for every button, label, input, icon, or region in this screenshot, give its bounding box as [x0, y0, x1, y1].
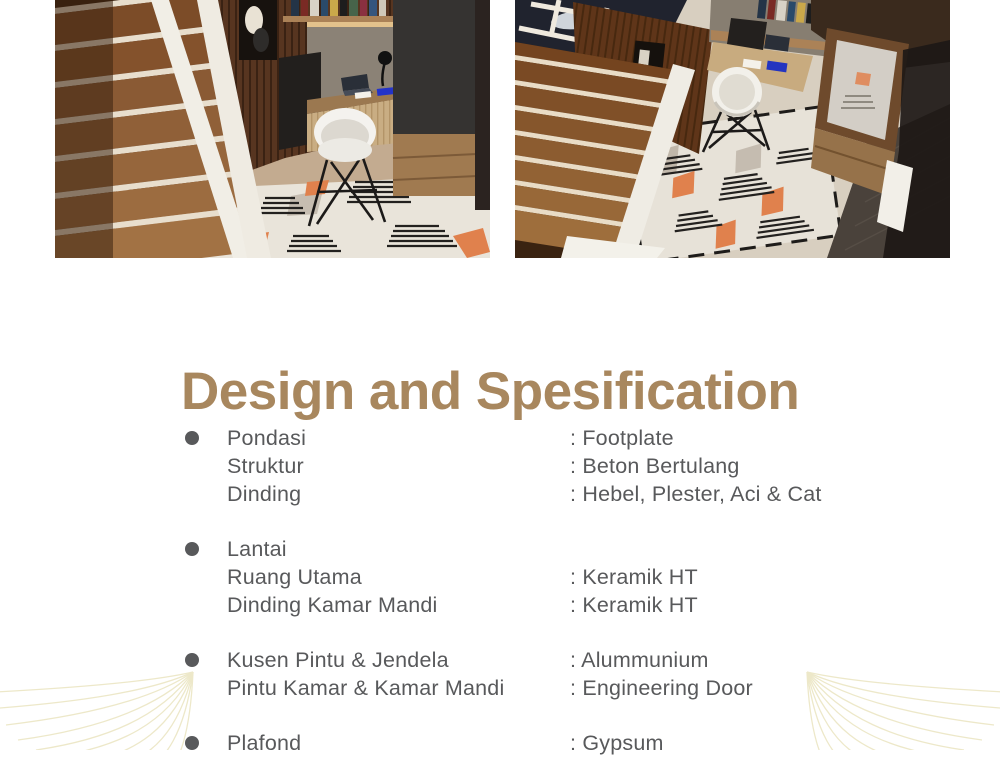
bullet-icon — [185, 542, 199, 556]
spec-row: Kusen Pintu & Jendela: Alummunium — [227, 646, 887, 674]
spec-value: : Hebel, Plester, Aci & Cat — [570, 480, 822, 508]
spec-value: : Alummunium — [570, 646, 709, 674]
spec-value: : Keramik HT — [570, 563, 698, 591]
spec-row: Pintu Kamar & Kamar Mandi: Engineering D… — [227, 674, 887, 702]
interior-render-right-illustration — [515, 0, 950, 258]
spec-value: : Footplate — [570, 424, 674, 452]
spec-label: Lantai — [227, 537, 287, 561]
spec-row: Struktur: Beton Bertulang — [227, 452, 887, 480]
spec-label: Pintu Kamar & Kamar Mandi — [227, 676, 504, 700]
interior-photo-right — [515, 0, 950, 258]
bullet-icon — [185, 431, 199, 445]
spec-group: Pondasi: FootplateStruktur: Beton Bertul… — [185, 424, 905, 508]
spec-label: Dinding Kamar Mandi — [227, 593, 438, 617]
spec-label: Dinding — [227, 482, 301, 506]
spec-row: Pondasi: Footplate — [227, 424, 887, 452]
spec-label: Kusen Pintu & Jendela — [227, 648, 449, 672]
spec-label: Pondasi — [227, 426, 306, 450]
spec-row: Dinding: Hebel, Plester, Aci & Cat — [227, 480, 887, 508]
interior-photo-left — [55, 0, 490, 258]
spec-rows: Plafond: Gypsum — [227, 729, 887, 757]
corner-ornament-right-icon — [790, 630, 1000, 750]
spec-rows: Kusen Pintu & Jendela: AlummuniumPintu K… — [227, 646, 887, 702]
spec-row: Dinding Kamar Mandi: Keramik HT — [227, 591, 887, 619]
wall-art — [239, 0, 277, 60]
spec-rows: LantaiRuang Utama: Keramik HTDinding Kam… — [227, 535, 887, 619]
spec-row: Plafond: Gypsum — [227, 729, 887, 757]
page-title: Design and Spesification — [181, 361, 881, 422]
mirror — [827, 40, 897, 140]
spec-value: : Engineering Door — [570, 674, 753, 702]
spec-label: Plafond — [227, 731, 301, 755]
wardrobe — [393, 0, 490, 210]
spec-value: : Keramik HT — [570, 591, 698, 619]
spec-row: Lantai — [227, 535, 887, 563]
interior-render-left-illustration — [55, 0, 490, 258]
spec-row: Ruang Utama: Keramik HT — [227, 563, 887, 591]
spec-value: : Beton Bertulang — [570, 452, 740, 480]
spec-value: : Gypsum — [570, 729, 664, 757]
corner-ornament-left-icon — [0, 630, 210, 750]
spec-group: LantaiRuang Utama: Keramik HTDinding Kam… — [185, 535, 905, 619]
spec-label: Struktur — [227, 454, 304, 478]
spec-rows: Pondasi: FootplateStruktur: Beton Bertul… — [227, 424, 887, 508]
spec-label: Ruang Utama — [227, 565, 362, 589]
